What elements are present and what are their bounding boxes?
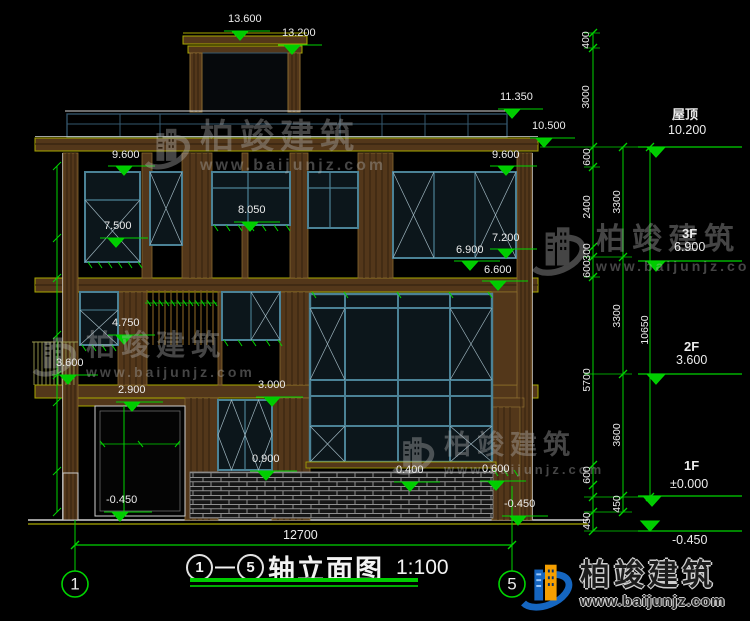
dim-label: 2F [684,340,699,353]
dim-label: 10650 [640,315,651,344]
dim-label: 450 [612,495,623,513]
dim-label: 3F [682,227,697,240]
dim-label: 5700 [582,368,593,391]
dim-label: ±0.000 [670,478,708,491]
watermark: 柏竣建筑 www.baijunjz.com [526,218,750,280]
dim-label: 8.050 [238,205,266,216]
dim-label: 11.350 [500,92,533,103]
dim-label: 600 [582,466,593,484]
brand-logo-icon [516,556,574,614]
brand-name: 柏竣建筑 [580,561,725,591]
title-scale: 1:100 [396,556,449,580]
watermark-logo-icon [140,121,192,173]
dim-label: 3600 [612,423,623,446]
dim-label: 13.600 [228,14,262,25]
dim-label: 300 [582,243,593,261]
dim-label: 450 [582,512,593,530]
dim-label: 10.500 [532,121,566,132]
dim-label: 6.900 [674,241,705,254]
watermark-url: www.baijunjz.com [200,158,386,174]
dim-label: 600 [582,260,593,278]
brand-url: www.baijunjz.com [580,594,725,609]
title-axis-bubble-start: 1 [186,554,213,581]
watermark-url: www.baijunjz.com [596,259,750,273]
dim-label: 4.750 [112,318,140,329]
dim-label: 3.000 [258,380,286,391]
dim-label: 3000 [581,85,592,108]
dim-label: 7.500 [104,221,132,232]
watermark-text: 柏竣建筑 [200,120,386,154]
watermark-logo-icon [526,218,588,280]
dim-label: 3.600 [676,354,707,367]
dim-label: 12700 [283,529,318,542]
dim-label: 3300 [612,190,623,213]
watermark-logo-icon [28,330,78,380]
dim-label: 13.200 [282,28,316,39]
watermark-url: www.baijunjz.com [86,365,255,379]
dim-label: 1F [684,459,699,472]
dim-label: 1 [70,576,79,593]
watermark-text: 柏竣建筑 [596,225,750,255]
watermark: 柏竣建筑 www.baijunjz.com [28,330,255,380]
dim-label: 6.900 [456,245,484,256]
dim-label: 3.600 [56,358,84,369]
watermark-text: 柏竣建筑 [444,432,604,459]
elevation-sheet: 13.60013.20011.35010.5009.6009.6008.0507… [0,0,750,621]
dim-label: 屋顶 [672,108,698,121]
dim-label: 0.900 [252,454,280,465]
dim-label: 400 [581,31,592,49]
dim-label: -0.450 [672,534,707,547]
dim-label: 0.600 [482,464,510,475]
dim-label: -0.450 [106,495,137,506]
title-underline-thick [190,578,418,582]
dim-label: 600 [582,148,593,166]
dim-label: 2400 [582,195,593,218]
title-axis-bubble-end: 5 [237,554,264,581]
dim-label: 9.600 [112,150,140,161]
dim-label: 3300 [612,304,623,327]
dim-label: 2.900 [118,385,146,396]
dim-label: 9.600 [492,150,520,161]
title-underline-thin [190,585,418,587]
dim-label: 7.200 [492,233,520,244]
dim-label: 10.200 [668,124,706,137]
watermark: 柏竣建筑 www.baijunjz.com [140,120,386,174]
dim-label: 0.400 [396,465,424,476]
watermark-layer: 柏竣建筑 www.baijunjz.com 柏竣建筑 www.baijunjz.… [0,0,750,621]
watermark-text: 柏竣建筑 [86,332,255,361]
title-dash: — [215,556,235,579]
dim-label: 6.600 [484,265,512,276]
dim-label: -0.450 [504,499,535,510]
brand-block: 柏竣建筑 www.baijunjz.com [516,556,725,614]
